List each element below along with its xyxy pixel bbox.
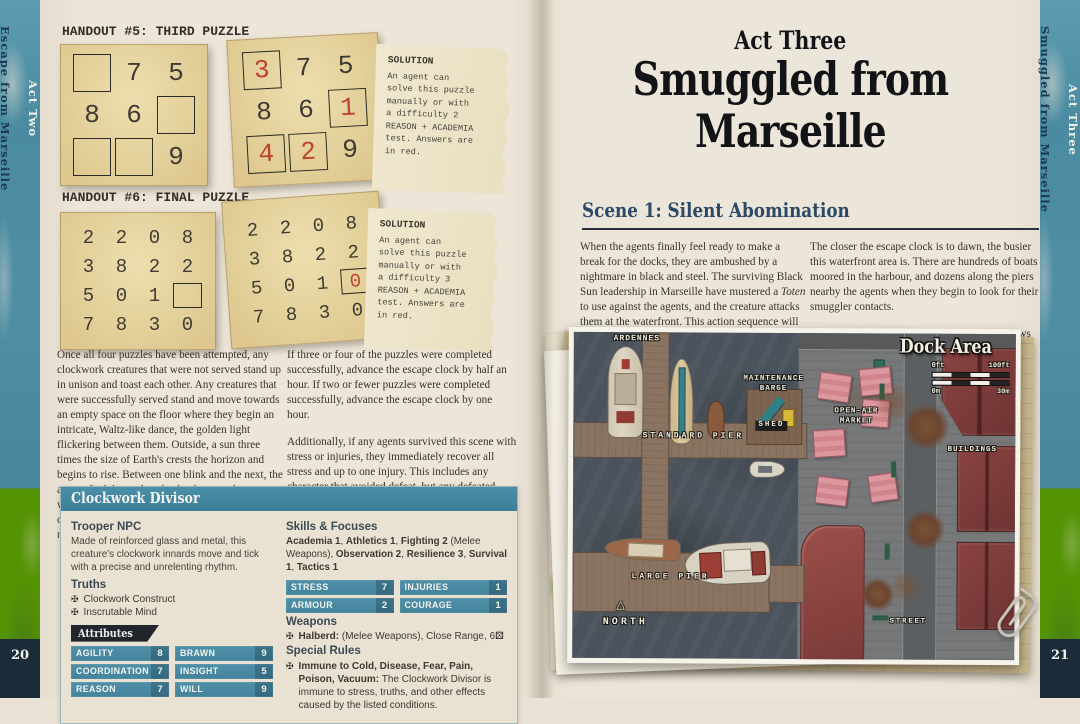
cross-bullet-icon: ✠ (286, 661, 294, 672)
npc-description: Made of reinforced glass and metal, this… (71, 536, 273, 575)
dock-map: Dock Area 0ft100ft 0m30m △ ARDENNESMAINT… (572, 332, 1016, 660)
puzzle-cell: 0 (138, 223, 171, 252)
puzzle-cell (171, 281, 204, 310)
handout5-heading: HANDOUT #5: THIRD PUZZLE (62, 24, 249, 39)
bench (885, 543, 890, 559)
left-spine: Act Two Escape from Marseille 20 (0, 0, 40, 698)
tree (905, 510, 945, 550)
stat-bar-will: WILL9 (175, 682, 273, 697)
statblock-left-column: Trooper NPC Made of reinforced glass and… (71, 518, 273, 714)
puzzle-cell: 8 (71, 94, 113, 136)
puzzle-cell: 2 (171, 252, 204, 281)
puzzle-cell: 2 (336, 236, 371, 267)
stat-bar-courage: COURAGE1 (400, 598, 508, 613)
cross-bullet-icon: ✠ (71, 594, 79, 605)
puzzle-cell (71, 52, 113, 94)
statblock-right-column: Skills & Focuses Academia 1, Athletics 1… (286, 518, 507, 714)
puzzle5-solved-card: 375861429 (226, 32, 386, 188)
truths-label: Truths (71, 579, 273, 591)
puzzle-cell: 0 (105, 281, 138, 310)
map-label-large-pier: LARGE PIER (619, 572, 723, 583)
building-a (957, 446, 1016, 532)
map-label-street: STREET (878, 617, 938, 626)
puzzle-cell: 5 (324, 44, 368, 88)
statblock-clockwork-divisor: Clockwork Divisor Trooper NPC Made of re… (60, 486, 518, 724)
solution5-text: An agent can solve this puzzle manually … (385, 70, 506, 161)
cross-bullet-icon: ✠ (71, 607, 79, 618)
puzzle-cell: 5 (239, 272, 274, 303)
skills-text: Academia 1, Athletics 1, Fighting 2 (Mel… (286, 536, 507, 575)
puzzle-cell: 8 (270, 241, 305, 272)
puzzle-cell: 8 (242, 90, 286, 134)
map-label-shed: SHED (755, 421, 787, 431)
page-gutter (528, 0, 554, 698)
puzzle-cell: 6 (113, 94, 155, 136)
puzzle-cell: 9 (328, 128, 372, 172)
stats-grid: STRESS7INJURIES1ARMOUR2COURAGE1 (286, 580, 507, 613)
puzzle-cell: 8 (274, 299, 309, 330)
attributes-banner: Attributes (71, 625, 159, 642)
chapter-title-line1: Smuggled from (540, 56, 1040, 102)
pier-connector (768, 565, 804, 603)
puzzle-cell: 3 (138, 310, 171, 339)
skills-label: Skills & Focuses (286, 521, 507, 533)
scale-ft-min: 0ft (932, 362, 945, 370)
map-label-buildings: BUILDINGS (929, 446, 1015, 456)
puzzle-cell (71, 136, 113, 178)
puzzle-cell: 5 (72, 281, 105, 310)
puzzle-cell: 7 (282, 46, 326, 90)
right-spine: Act Three Smuggled from Marseille 21 (1040, 0, 1080, 698)
rust-stain (888, 569, 922, 603)
left-spine-text: Act Two Escape from Marseille (0, 26, 40, 191)
puzzle-cell: 1 (305, 268, 340, 299)
weapon-entry: ✠ Halberd: (Melee Weapons), Close Range,… (286, 631, 507, 642)
stat-bar-agility: AGILITY8 (71, 646, 169, 661)
market-stall (814, 475, 849, 507)
puzzle-cell: 6 (284, 88, 328, 132)
puzzle6-solved-card: 2208382250107830 (221, 191, 389, 350)
puzzle-cell: 2 (105, 223, 138, 252)
stat-bar-coordination: COORDINATION7 (71, 664, 169, 679)
market-stall (812, 428, 846, 458)
solution5-title: SOLUTION (388, 54, 506, 69)
small-boat (749, 461, 785, 478)
map-label-standard-pier: STANDARD PIER (623, 431, 763, 442)
bench (891, 462, 896, 478)
puzzle6-grid: 220838225017830 (72, 223, 204, 339)
left-spine-act: Act Two (26, 80, 40, 137)
waterfront-building (800, 525, 865, 660)
paragraph: The closer the escape clock is to dawn, … (810, 240, 1040, 315)
puzzle-cell: 2 (72, 223, 105, 252)
puzzle-cell: 5 (155, 52, 197, 94)
right-spine-title: Smuggled from Marseille (1038, 26, 1052, 213)
book-spread: { "book": { "left_spine": { "act": "Act … (0, 0, 1080, 698)
puzzle-cell: 7 (241, 301, 276, 332)
scale-m-max: 30m (997, 388, 1010, 396)
map-label-north: NORTH (588, 616, 662, 629)
puzzle-cell: 2 (268, 212, 303, 243)
puzzle-cell: 2 (235, 214, 270, 245)
scale-m-min: 0m (932, 388, 940, 396)
left-page: HANDOUT #5: THIRD PUZZLE 75869 375861429… (40, 0, 540, 698)
weapons-label: Weapons (286, 616, 507, 628)
npc-type: Trooper NPC (71, 521, 273, 533)
boat-ardennes (607, 346, 643, 438)
scene-heading: Scene 1: Silent Abomination (582, 198, 1039, 230)
page-number-left: 20 (0, 639, 40, 698)
stat-bar-armour: ARMOUR2 (286, 598, 394, 613)
puzzle6-solved-grid: 2208382250107830 (235, 208, 375, 333)
puzzle-cell: 3 (72, 252, 105, 281)
puzzle-cell: 8 (334, 208, 369, 239)
puzzle-cell: 3 (307, 297, 342, 328)
puzzle-cell: 2 (286, 130, 330, 174)
puzzle6-unsolved-card: 220838225017830 (60, 212, 216, 350)
map-collage: Dock Area 0ft100ft 0m30m △ ARDENNESMAINT… (548, 326, 1040, 680)
stat-bar-brawn: BRAWN9 (175, 646, 273, 661)
stat-bar-injuries: INJURIES1 (400, 580, 508, 595)
special-rule-entry: ✠ Immune to Cold, Disease, Fear, Pain, P… (286, 660, 507, 712)
puzzle-cell: 1 (138, 281, 171, 310)
truths-list: ✠Clockwork Construct✠Inscrutable Mind (71, 594, 273, 618)
scale-bar-line (932, 380, 1010, 386)
statblock-title: Clockwork Divisor (61, 487, 517, 511)
solution6-title: SOLUTION (380, 218, 494, 233)
challenge-die-icon: ⚄ (495, 631, 504, 642)
puzzle5-unsolved-card: 75869 (60, 44, 208, 186)
act-label: Act Three (540, 26, 1040, 55)
special-rule-text: Immune to Cold, Disease, Fear, Pain, Poi… (299, 660, 507, 712)
map-label-open-air-market: OPEN-AIR MARKET (819, 407, 893, 427)
stat-bar-insight: INSIGHT5 (175, 664, 273, 679)
weapon-text: Halberd: (Melee Weapons), Close Range, 6 (299, 631, 496, 642)
scale-bar-line (932, 372, 1010, 378)
map-label-ardennes: ARDENNES (594, 334, 680, 345)
puzzle-cell: 7 (113, 52, 155, 94)
special-rules-label: Special Rules (286, 645, 507, 657)
puzzle5-solved-grid: 375861429 (240, 44, 372, 176)
map-scale-bar: 0ft100ft 0m30m (932, 362, 1010, 396)
stat-bar-stress: STRESS7 (286, 580, 394, 595)
puzzle-cell: 8 (171, 223, 204, 252)
puzzle-cell: 0 (272, 270, 307, 301)
right-spine-act: Act Three (1066, 84, 1080, 156)
page-number-right: 21 (1040, 639, 1080, 698)
puzzle5-grid: 75869 (71, 52, 197, 178)
truth-item: ✠Clockwork Construct (71, 594, 273, 605)
puzzle-cell: 2 (138, 252, 171, 281)
puzzle-cell: 8 (105, 310, 138, 339)
puzzle-cell: 0 (171, 310, 204, 339)
puzzle-cell: 4 (244, 132, 288, 176)
left-spine-title: Escape from Marseille (0, 26, 12, 191)
right-page: Act Three Smuggled from Marseille Scene … (540, 0, 1040, 698)
dock-map-photo: Dock Area 0ft100ft 0m30m △ ARDENNESMAINT… (567, 327, 1021, 665)
paragraph: If three or four of the puzzles were com… (287, 348, 517, 423)
solution5-note: SOLUTION An agent can solve this puzzle … (372, 44, 517, 194)
puzzle-cell: 3 (240, 48, 284, 92)
scale-ft-max: 100ft (989, 362, 1010, 370)
stat-bar-reason: REASON7 (71, 682, 169, 697)
market-stall (817, 371, 853, 403)
north-arrow-icon: △ (616, 598, 625, 611)
puzzle-cell: 7 (72, 310, 105, 339)
right-spine-text: Act Three Smuggled from Marseille (1040, 26, 1080, 213)
map-title: Dock Area (900, 336, 1010, 359)
truth-item: ✠Inscrutable Mind (71, 607, 273, 618)
attributes-grid: AGILITY8BRAWN9COORDINATION7INSIGHT5REASO… (71, 646, 273, 697)
solution6-note: SOLUTION An agent can solve this puzzle … (364, 208, 504, 352)
chapter-title-line2: Marseille (540, 108, 1040, 154)
puzzle-cell: 8 (105, 252, 138, 281)
solution6-text: An agent can solve this puzzle manually … (377, 234, 494, 325)
puzzle-cell (155, 94, 197, 136)
puzzle-cell: 3 (237, 243, 272, 274)
cross-bullet-icon: ✠ (286, 631, 294, 642)
puzzle-cell: 9 (155, 136, 197, 178)
puzzle-cell (113, 136, 155, 178)
puzzle-cell: 2 (303, 239, 338, 270)
puzzle-cell: 0 (301, 210, 336, 241)
map-label-maintenance-barge: MAINTENANCE BARGE (726, 375, 822, 395)
puzzle-cell: 1 (326, 86, 370, 130)
